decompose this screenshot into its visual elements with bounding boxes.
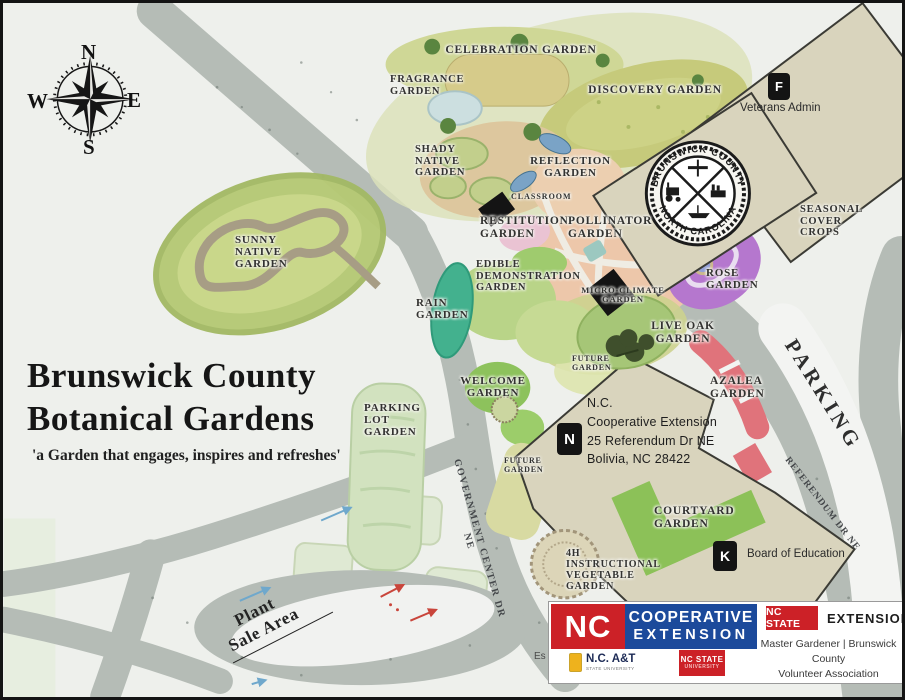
label-pollinator-garden: POLLINATOR GARDEN xyxy=(568,215,652,240)
label-courtyard-garden: COURTYARD GARDEN xyxy=(654,505,735,530)
map-tagline: 'a Garden that engages, inspires and ref… xyxy=(32,447,341,465)
map-title-line1: Brunswick County xyxy=(27,355,316,398)
nc-state-small-line2: UNIVERSITY xyxy=(679,665,725,671)
nc-cooperative-extension-logo-wordmark: COOPERATIVE EXTENSION xyxy=(625,604,757,649)
map-title-line2: Botanical Gardens xyxy=(27,398,316,441)
label-future-garden-2: FUTURE GARDEN xyxy=(504,457,543,475)
compass-north-label: N xyxy=(81,40,96,65)
label-discovery-garden: DISCOVERY GARDEN xyxy=(565,84,745,97)
nc-state-extension-badge: NC STATE xyxy=(766,606,818,630)
label-sunny-native-garden: SUNNY NATIVE GARDEN xyxy=(235,234,287,270)
label-micro-climate-garden: MICRO-CLIMATE GARDEN xyxy=(579,286,667,305)
label-shady-native-garden: SHADY NATIVE GARDEN xyxy=(415,144,465,179)
label-welcome-garden: WELCOME GARDEN xyxy=(449,375,537,399)
extension-word-blue: EXTENSION xyxy=(625,627,757,644)
compass-south-label: S xyxy=(83,135,95,160)
label-rain-garden: RAIN GARDEN xyxy=(416,297,468,321)
ncat-name: N.C. A&T xyxy=(586,654,635,666)
compass-west-label: W xyxy=(27,89,48,114)
label-parking-lot-garden: PARKING LOT GARDEN xyxy=(364,402,421,438)
compass-east-label: E xyxy=(127,88,141,113)
label-rose-garden: ROSE GARDEN xyxy=(706,267,758,291)
brunswick-county-seal: BRUNSWICK COUNTY NORTH CAROLINA xyxy=(646,142,749,245)
garden-map: BRUNSWICK COUNTY NORTH CAROLINA xyxy=(0,0,905,700)
stray-text: Es xyxy=(534,651,546,662)
badge-f-veterans: F xyxy=(768,73,790,100)
ncat-logo: N.C. A&T STATE UNIVERSITY xyxy=(569,653,635,672)
extension-address: N.C. Cooperative Extension 25 Referendum… xyxy=(587,394,717,469)
label-seasonal-cover-crops: SEASONAL COVER CROPS xyxy=(800,204,863,239)
nc-cooperative-extension-logo-nc: NC xyxy=(551,604,625,649)
nc-state-university-logo: NC STATE UNIVERSITY xyxy=(679,650,725,676)
label-celebration-garden: CELEBRATION GARDEN xyxy=(431,44,611,57)
veterans-admin-label: Veterans Admin xyxy=(740,102,821,114)
map-title: Brunswick County Botanical Gardens xyxy=(27,355,316,440)
board-of-education-label: Board of Education xyxy=(747,548,845,560)
label-azalea-garden: AZALEA GARDEN xyxy=(710,375,765,400)
label-future-garden-1: FUTURE GARDEN xyxy=(572,355,611,373)
ncat-logo-icon xyxy=(569,653,582,672)
nc-state-extension-word: EXTENSION xyxy=(827,611,905,626)
cooperative-word: COOPERATIVE xyxy=(625,609,757,627)
label-restitution-garden: RESTITUTION GARDEN xyxy=(480,215,569,240)
label-live-oak-garden: LIVE OAK GARDEN xyxy=(637,320,729,345)
master-gardener-association-text: Master Gardener | Brunswick County Volun… xyxy=(750,637,905,683)
label-reflection-garden: REFLECTION GARDEN xyxy=(518,155,623,179)
label-edible-demonstration-garden: EDIBLE DEMONSTRATION GARDEN xyxy=(476,259,581,294)
ncat-sub: STATE UNIVERSITY xyxy=(586,666,635,671)
label-4h-vegetable-garden: 4H INSTRUCTIONAL VEGETABLE GARDEN xyxy=(566,548,661,592)
badge-k-education: K xyxy=(713,541,737,571)
badge-n-extension: N xyxy=(557,423,582,455)
label-classroom: CLASSROOM xyxy=(511,193,572,202)
label-fragrance-garden: FRAGRANCE GARDEN xyxy=(390,74,464,97)
